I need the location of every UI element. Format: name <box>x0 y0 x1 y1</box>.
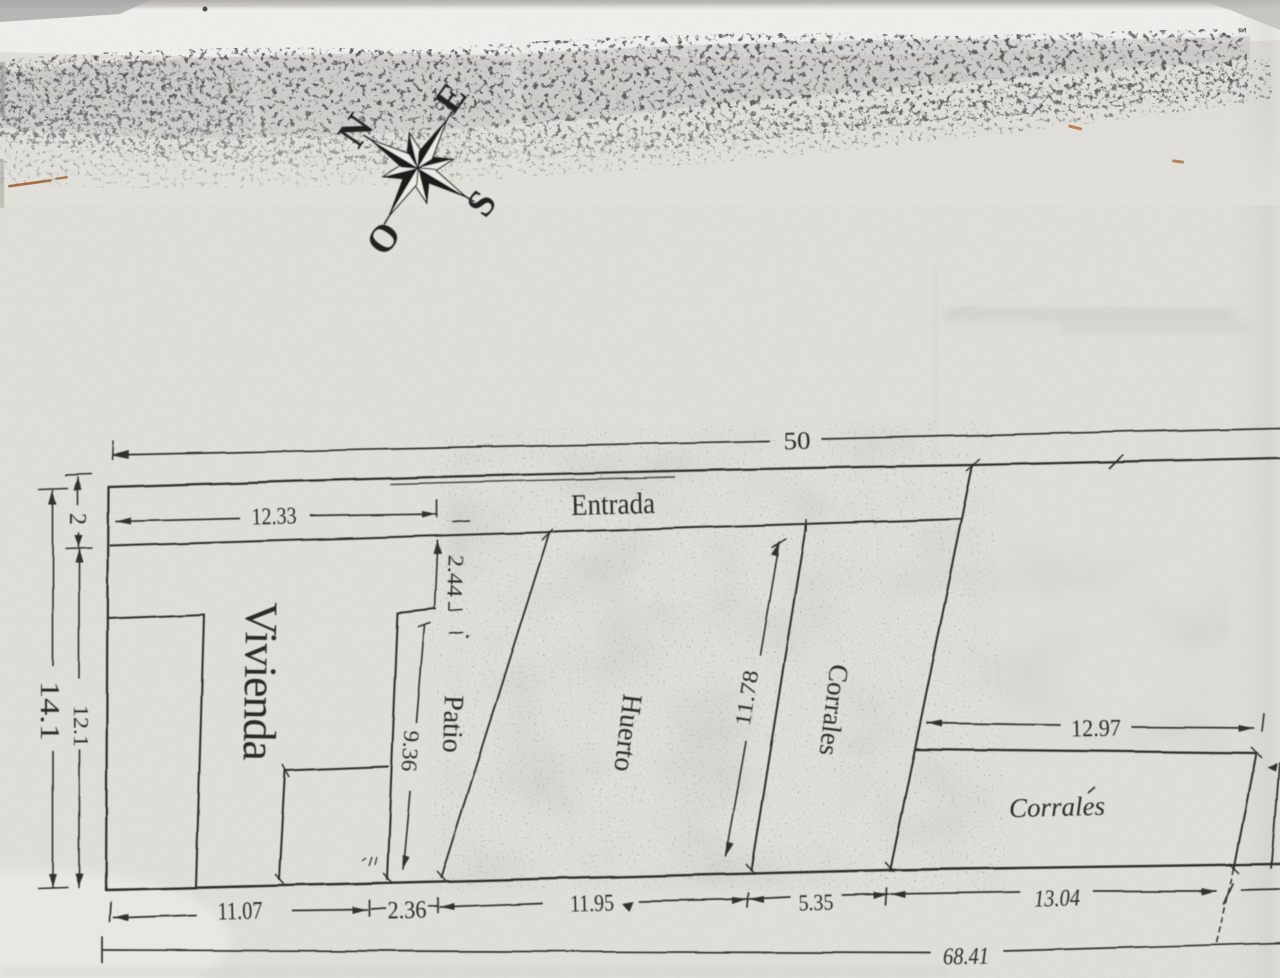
svg-text:13.04: 13.04 <box>1034 885 1081 912</box>
svg-text:12.97: 12.97 <box>1071 716 1121 743</box>
svg-text:Entrada: Entrada <box>571 487 656 522</box>
svg-text:68.41: 68.41 <box>943 944 989 971</box>
svg-text:Vivienda: Vivienda <box>234 602 288 761</box>
svg-text:5.35: 5.35 <box>798 890 834 916</box>
svg-text:11.07: 11.07 <box>217 897 263 925</box>
svg-text:2: 2 <box>64 513 90 525</box>
svg-text:11.95: 11.95 <box>570 890 615 917</box>
svg-text:50: 50 <box>783 428 811 456</box>
svg-text:9.36: 9.36 <box>397 730 425 773</box>
svg-text:12.33: 12.33 <box>251 503 297 530</box>
svg-text:2.36: 2.36 <box>387 896 427 924</box>
svg-text:14.1: 14.1 <box>35 681 65 741</box>
svg-text:12.1: 12.1 <box>69 705 93 747</box>
svg-text:Corrales: Corrales <box>1009 791 1106 824</box>
svg-text:Patio: Patio <box>436 695 469 754</box>
svg-text:2.44: 2.44 <box>442 555 468 598</box>
